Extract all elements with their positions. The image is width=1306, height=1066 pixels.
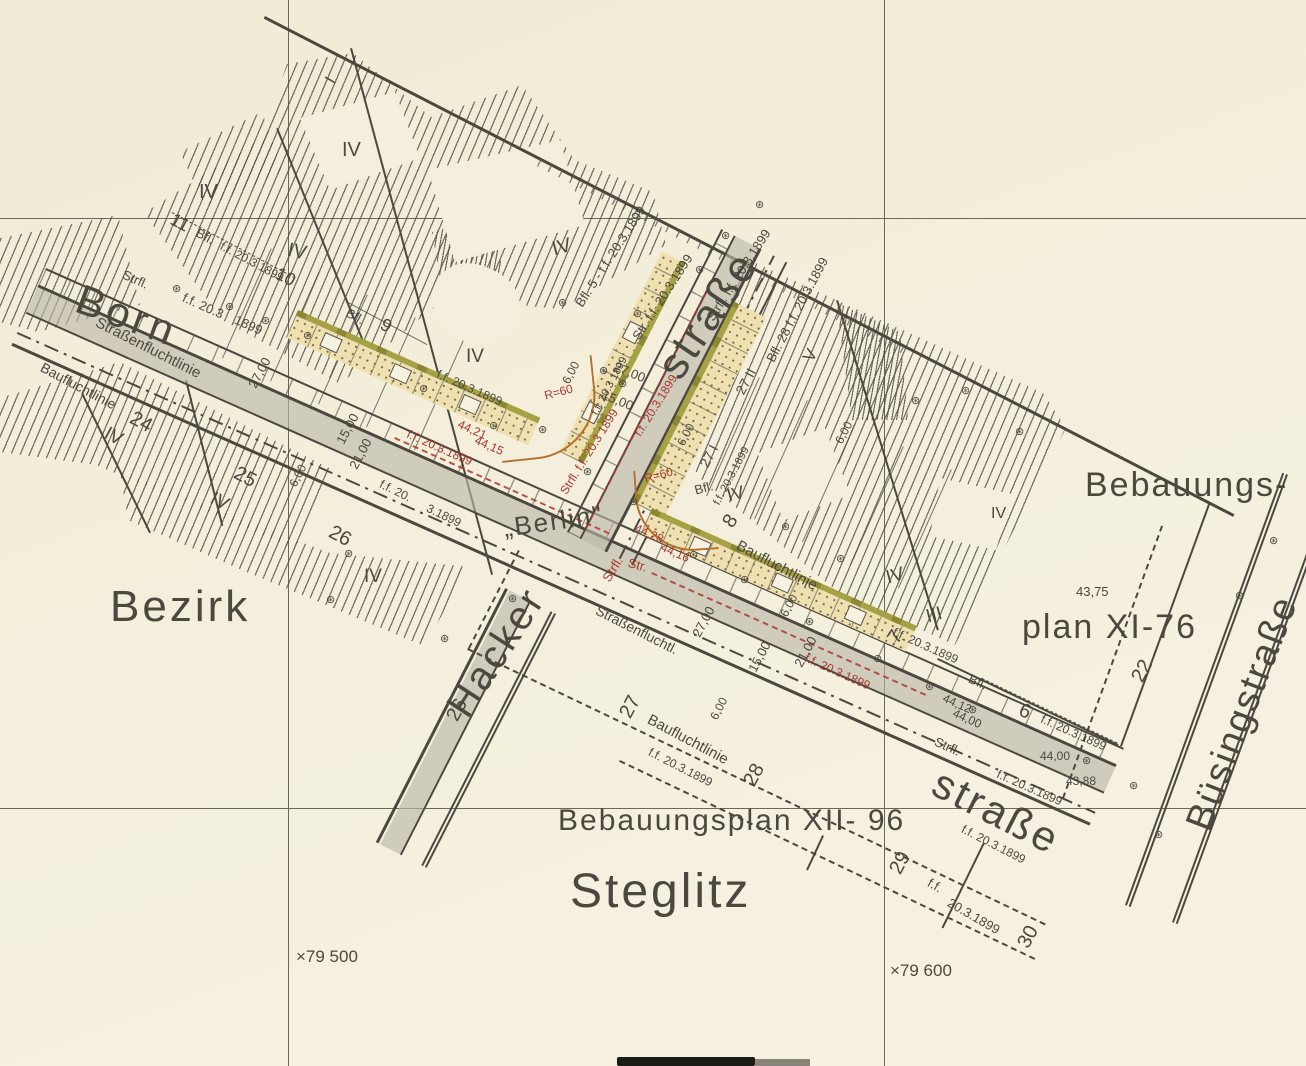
- boundary-stone-icon: ⊛: [1235, 591, 1244, 602]
- boundary-stone-icon: ⊛: [873, 654, 882, 665]
- boundary-stone-icon: ⊛: [508, 594, 517, 605]
- boundary-stone-icon: ⊛: [781, 522, 790, 533]
- boundary-stone-icon: ⊛: [911, 396, 920, 407]
- boundary-stone-icon: ⊛: [583, 467, 592, 478]
- boundary-stone-icon: ⊛: [303, 331, 312, 342]
- boundary-stone-icon: ⊛: [721, 231, 730, 242]
- boundary-stone-icon: ⊛: [344, 549, 353, 560]
- boundary-stone-icon: ⊛: [1015, 427, 1024, 438]
- boundary-stone-icon: ⊛: [599, 366, 608, 377]
- boundary-stone-icon: ⊛: [925, 682, 934, 693]
- boundary-stone-icon: ⊛: [805, 617, 814, 628]
- boundary-stone-icon: ⊛: [489, 421, 498, 432]
- boundary-stone-icon: ⊛: [440, 634, 449, 645]
- boundary-stone-icon: ⊛: [225, 302, 234, 313]
- boundary-stone-icon: ⊛: [538, 425, 547, 436]
- boundary-stones-layer: ⊛⊛⊛⊛⊛⊛⊛⊛⊛⊛⊛⊛⊛⊛⊛⊛⊛⊛⊛⊛⊛⊛⊛⊛⊛⊛⊛⊛⊛⊛⊛⊛⊛⊛⊛⊛: [0, 0, 1306, 1066]
- boundary-stone-icon: ⊛: [836, 554, 845, 565]
- boundary-stone-icon: ⊛: [968, 705, 977, 716]
- boundary-stone-icon: ⊛: [633, 309, 642, 320]
- boundary-stone-icon: ⊛: [1129, 781, 1138, 792]
- boundary-stone-icon: ⊛: [419, 384, 428, 395]
- boundary-stone-icon: ⊛: [695, 265, 704, 276]
- boundary-stone-icon: ⊛: [1154, 830, 1163, 841]
- boundary-stone-icon: ⊛: [618, 379, 627, 390]
- boundary-stone-icon: ⊛: [689, 550, 698, 561]
- boundary-stone-icon: ⊛: [755, 200, 764, 211]
- boundary-stone-icon: ⊛: [326, 595, 335, 606]
- boundary-stone-icon: ⊛: [558, 298, 567, 309]
- boundary-stone-icon: ⊛: [261, 316, 270, 327]
- boundary-stone-icon: ⊛: [172, 284, 181, 295]
- scanned-development-plan-map: BornstraßeHackerstraßeBüsingstraßeBezirk…: [0, 0, 1306, 1066]
- boundary-stone-icon: ⊛: [629, 497, 638, 508]
- boundary-stone-icon: ⊛: [1269, 536, 1278, 547]
- boundary-stone-icon: ⊛: [1082, 756, 1091, 767]
- boundary-stone-icon: ⊛: [740, 575, 749, 586]
- boundary-stone-icon: ⊛: [961, 386, 970, 397]
